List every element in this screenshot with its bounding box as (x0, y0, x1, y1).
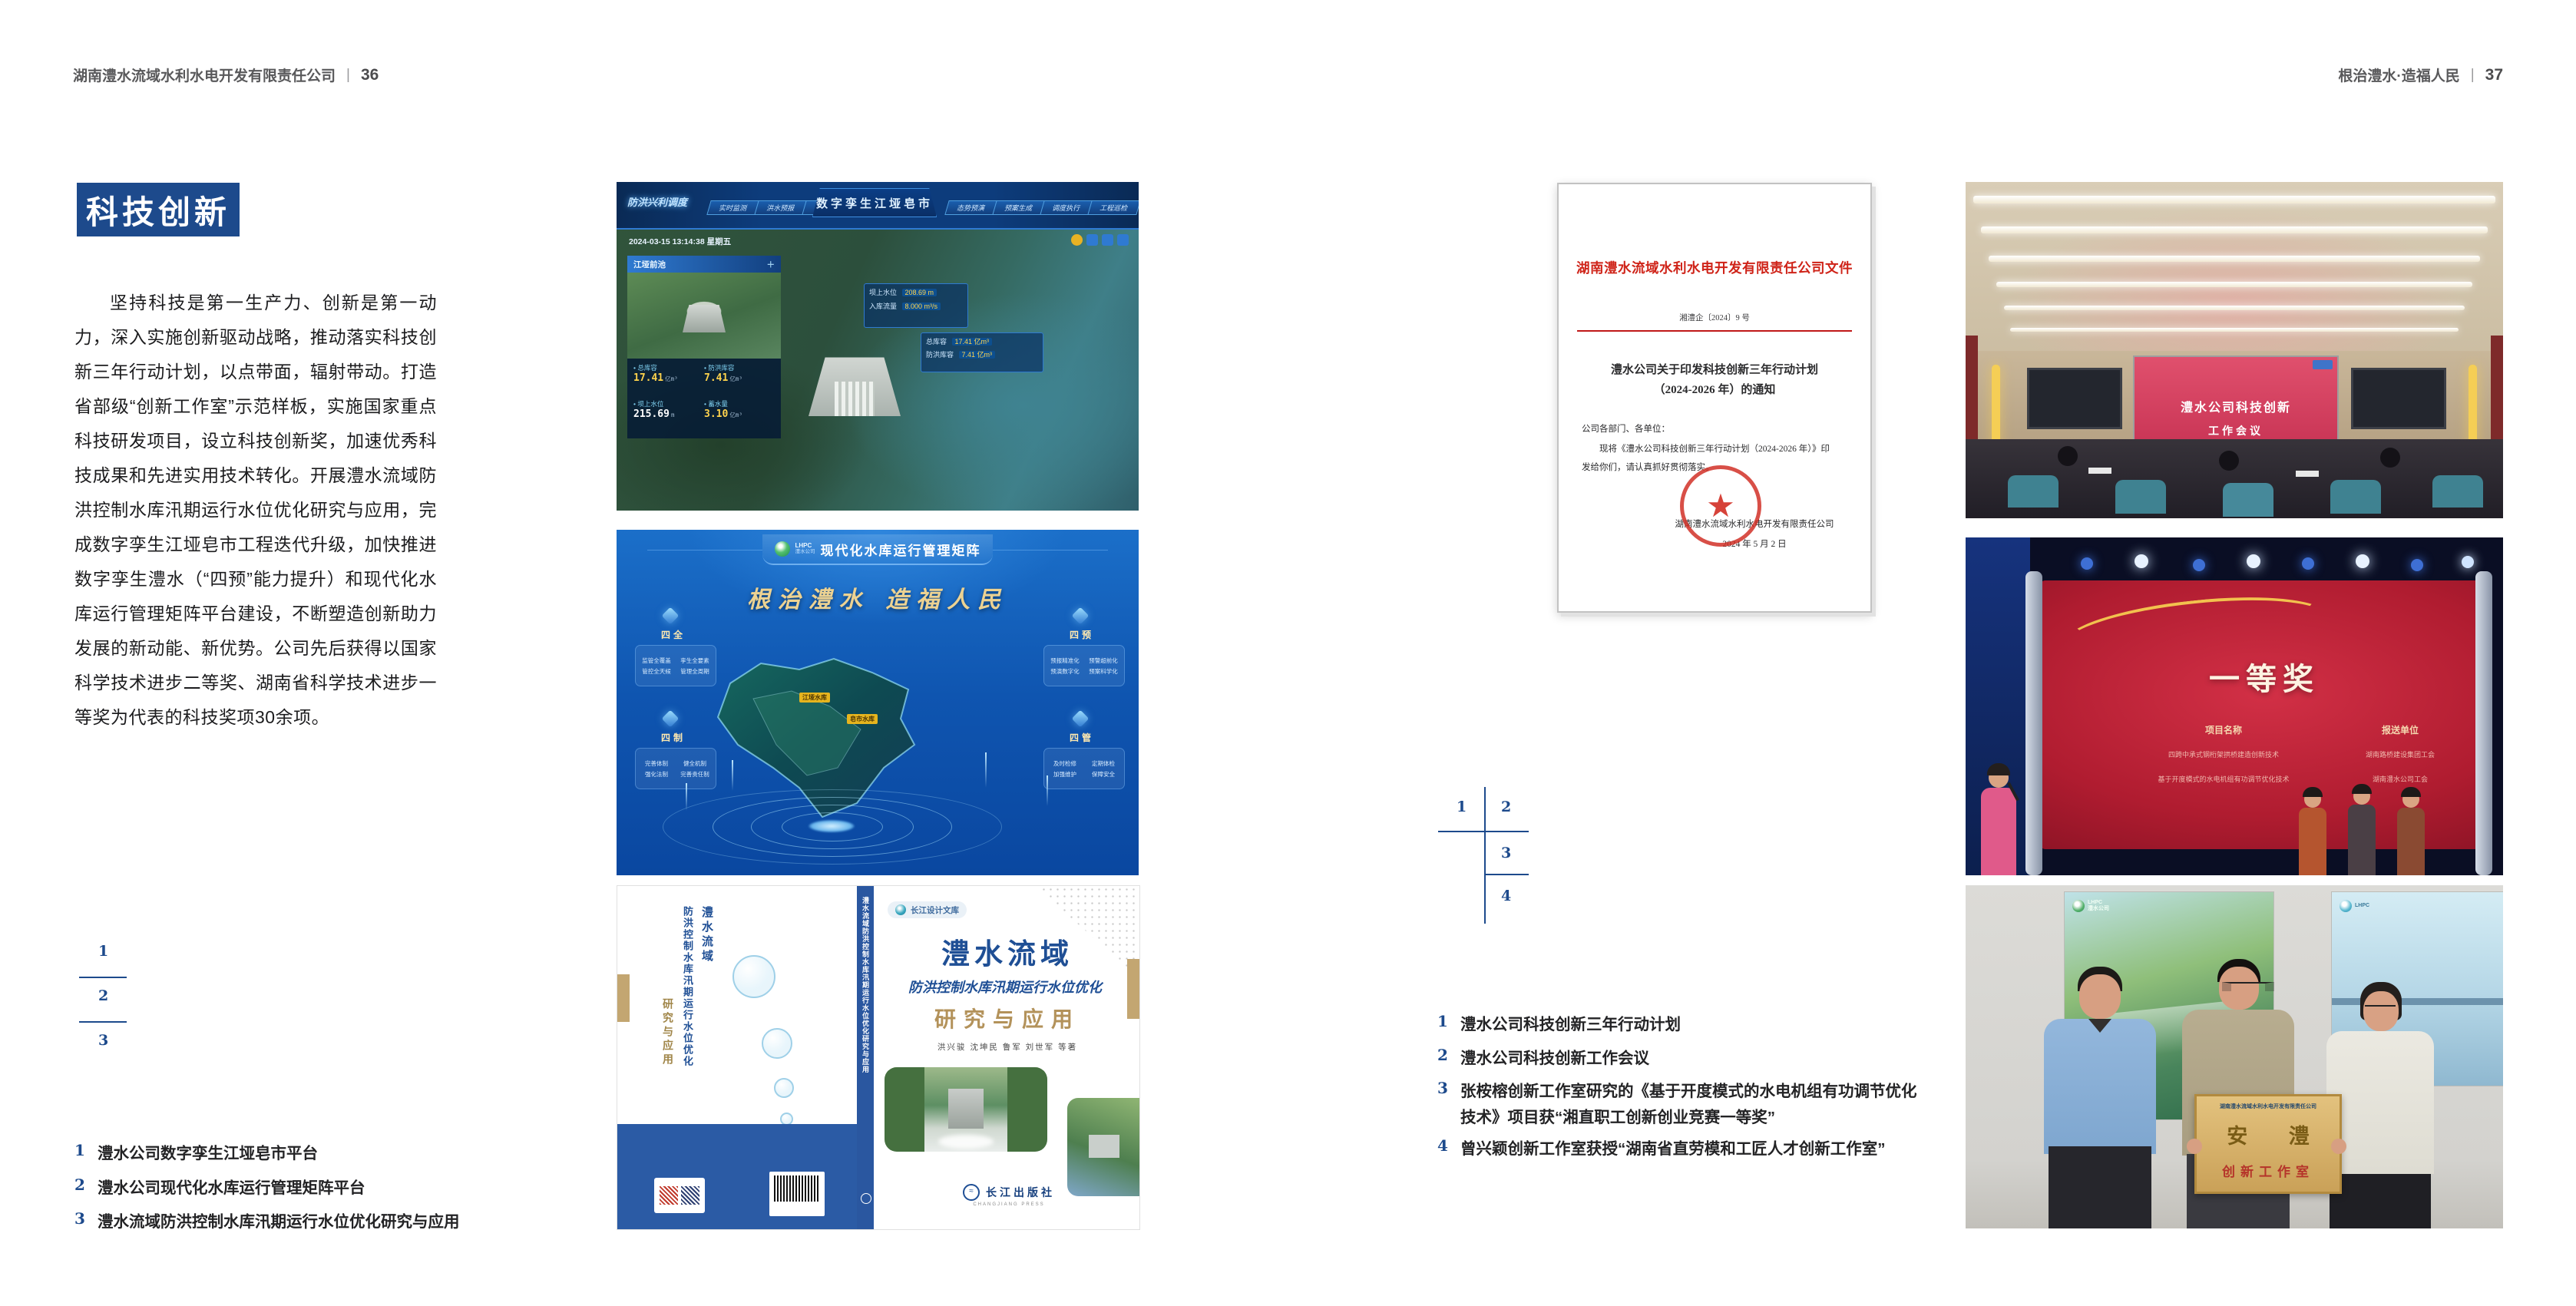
award-title: 一等奖 (2039, 654, 2489, 699)
chip-value: 8.000 m³/s (902, 303, 941, 310)
stat-value: 215.69 (633, 408, 670, 420)
award-row-project: 基于开度模式的水电机组有功调节优化技术 (2124, 774, 2323, 784)
award-row-unit: 湖南澧水公司工会 (2339, 774, 2462, 784)
caption-text: 澧水公司数字孪生江垭皂市平台 (98, 1141, 318, 1167)
publisher-name: 长江出版社 (986, 1185, 1055, 1200)
document-red-rule (1577, 330, 1852, 332)
panel-item: 预报精准化 (1050, 656, 1080, 665)
book-cover-photo (885, 1067, 1047, 1152)
panel-siquan: 监管全覆盖 孪生全要素 管控全天候 管理全周期 (635, 645, 716, 686)
lhpc-logo-icon (2072, 900, 2085, 912)
poster-logo-subtext: 澧水公司 (2088, 906, 2109, 911)
screen-title-line1: 澧水公司科技创新 (2135, 397, 2337, 415)
official-document: 湖南澧水流域水利水电开发有限责任公司文件 湘澧企〔2024〕9 号 澧水公司关于… (1557, 183, 1872, 613)
stat-unit: m (671, 412, 675, 418)
magazine-spread: 湖南澧水流域水利水电开发有限责任公司 | 36 科技创新 坚持科技是第一生产力、… (0, 0, 2576, 1306)
attendee-head (2380, 448, 2400, 468)
caption-row: 3 澧水流域防洪控制水库汛期运行水位优化研究与应用 (74, 1209, 551, 1235)
panel-item: 加强维护 (1053, 770, 1076, 779)
section-title-badge: 科技创新 (77, 183, 240, 236)
spotlight (2247, 554, 2260, 568)
plaque-org-line: 湖南澧水流域水利水电开发有限责任公司 (2197, 1103, 2340, 1110)
official-seal: ★ (1680, 465, 1761, 547)
qr-code (654, 1178, 705, 1213)
panel-item: 完善体制 (645, 759, 668, 768)
header-divider: | (2471, 67, 2475, 84)
chair-back (2432, 475, 2483, 508)
stat-label: 坝上水位 (637, 400, 663, 408)
expand-icon: ＋ (767, 259, 775, 270)
chip-value: 17.41 亿m³ (952, 338, 993, 346)
chair-back (2330, 480, 2381, 514)
publisher-block: ≈ 长江出版社 CHANGJIANG PRESS (901, 1184, 1116, 1207)
glasses-icon (2365, 1005, 2396, 1013)
page-number: 37 (2485, 66, 2503, 84)
panel-name: 四制 (635, 731, 712, 744)
dashboard-tab: 实时监测 (706, 200, 759, 215)
figure-index-2: 2 (1501, 798, 1511, 815)
ceiling-light (2004, 306, 2465, 310)
dashboard-tab: 工程巡检 (1087, 200, 1139, 215)
awardee-figure (2394, 791, 2428, 875)
figure-book-cover: 澧水流域 防洪控制水库汛期运行水位优化 研究与应用 澧水流域防洪控制水库汛期运行… (617, 885, 1140, 1230)
panel-item: 监管全覆盖 (642, 656, 671, 665)
book-back-title-2: 防洪控制水库汛期运行水位优化 (680, 906, 695, 1098)
dashboard-tab: 洪水预报 (754, 200, 807, 215)
index-divider (79, 977, 127, 978)
stat-value: 3.10 (704, 408, 728, 420)
logo-subtext: 澧水公司 (795, 549, 815, 555)
person-figure (2035, 959, 2165, 1228)
panel-item: 强化法制 (645, 770, 668, 779)
header-divider: | (346, 67, 350, 84)
matrix-title: 现代化水库运行管理矩阵 (821, 540, 981, 559)
matrix-header-line (993, 550, 1108, 551)
ripple-core (809, 820, 855, 832)
panel-item: 预演数字化 (1050, 667, 1080, 676)
document-salutation: 公司各部门、各单位： (1582, 422, 1670, 435)
side-tv-screen (2351, 368, 2446, 429)
monitor-panel-title: 江垭前池 (633, 259, 666, 270)
caption-row: 2 澧水公司现代化水库运行管理矩阵平台 (74, 1175, 535, 1202)
caption-row: 1 澧水公司数字孪生江垭皂市平台 (74, 1141, 535, 1167)
document-body-line1: 现将《澧水公司科技创新三年行动计划（2024-2026 年）》印 (1582, 442, 1850, 455)
dashboard-datetime: 2024-03-15 13:14:38 星期五 (629, 236, 731, 247)
panel-siguan: 及时检修 定期体检 加强维护 保障安全 (1043, 748, 1125, 789)
book-spine: 澧水流域防洪控制水库汛期运行水位优化研究与应用 (857, 886, 874, 1229)
matrix-slogan: 根治澧水 造福人民 (617, 580, 1139, 614)
right-running-header: 根治澧水·造福人民 | 37 (1994, 64, 2503, 85)
panel-item: 预案科学化 (1089, 667, 1118, 676)
award-col-project: 项目名称 (2154, 723, 2293, 736)
document-title-line2: （2024-2026 年）的通知 (1559, 381, 1870, 397)
photo-group-plaque: LHPC 澧水公司 LHPC (1966, 885, 2503, 1228)
document-date: 2024 年 5 月 2 日 (1643, 537, 1866, 550)
figure-matrix-platform: LHPC 澧水公司 现代化水库运行管理矩阵 根治澧水 造福人民 江垭水库 皂市水… (617, 530, 1139, 875)
screen-title-line2: 工作会议 (2135, 423, 2337, 438)
lhpc-logo-icon (2340, 900, 2352, 912)
dashboard-title: 数字孪生江垭皂市 (812, 188, 937, 217)
awardee-figure (2296, 791, 2330, 875)
index-vline (1484, 787, 1486, 924)
attendee-head (2219, 451, 2239, 471)
index-hline (1485, 874, 1529, 875)
caption-text: 澧水公司科技创新三年行动计划 (1460, 1012, 1681, 1038)
ceiling-light (1973, 196, 2495, 203)
ceiling-light (1989, 256, 2480, 262)
caption-row: 3 张桉榕创新工作室研究的《基于开度模式的水电机组有功调节优化技术》项目获“湘直… (1437, 1079, 1929, 1131)
ceiling-light (2010, 328, 2459, 332)
side-tv-screen (2027, 368, 2122, 429)
attendee-head (2058, 446, 2078, 466)
body-paragraph: 坚持科技是第一生产力、创新是第一动力，深入实施创新驱动战略，推动落实科技创新三年… (74, 286, 437, 735)
spotlight (2081, 557, 2093, 570)
stat-unit: 亿m³ (729, 412, 742, 418)
caption-row: 4 曾兴颖创新工作室获授“湖南省直劳模和工匠人才创新工作室” (1437, 1136, 1944, 1162)
chip-label: 防洪库容 (926, 351, 954, 359)
figure-index-3: 3 (98, 1032, 108, 1049)
bubble-decoration (732, 955, 775, 998)
plaque-main-text: 安 澧 (2197, 1119, 2340, 1149)
motto: 根治澧水·造福人民 (2338, 64, 2459, 85)
spine-logo-icon (861, 1193, 871, 1204)
panel-item: 保障安全 (1092, 770, 1115, 779)
spotlight (2135, 554, 2148, 568)
figure-index-1: 1 (98, 943, 108, 960)
light-pin (732, 760, 733, 791)
seal-star-icon: ★ (1706, 490, 1735, 522)
book-series-chip: 长江设计文库 (888, 901, 967, 918)
matrix-header: LHPC 澧水公司 现代化水库运行管理矩阵 (762, 534, 993, 565)
document-title-line1: 澧水公司关于印发科技创新三年行动计划 (1559, 361, 1870, 377)
bubble-decoration (774, 1078, 794, 1098)
caption-number: 1 (74, 1141, 98, 1159)
book-title-sub: 防洪控制水库汛期运行水位优化 (878, 977, 1132, 997)
series-logo-icon (895, 904, 906, 915)
panel-item: 完善责任制 (680, 770, 709, 779)
lhpc-logo-icon (775, 541, 790, 557)
barcode (769, 1172, 825, 1216)
book-authors: 洪兴骏 沈坤民 鲁军 刘世军 等著 (886, 1041, 1129, 1053)
table-paper (2296, 471, 2319, 477)
book-back-blue-band (617, 1124, 857, 1229)
index-divider (79, 1021, 127, 1023)
chip-label: 总库容 (926, 338, 947, 346)
chip-value: 208.69 m (902, 289, 937, 296)
poster-logo-text: LHPC (2355, 903, 2369, 908)
caption-text: 张桉榕创新工作室研究的《基于开度模式的水电机组有功调节优化技术》项目获“湘直职工… (1460, 1079, 1929, 1131)
award-col-unit: 报送单位 (2339, 723, 2462, 736)
book-title-main: 澧水流域 (886, 931, 1129, 972)
spotlight (2411, 559, 2423, 571)
award-row-project: 四跨中承式钢桁架拱桥建造创新技术 (2124, 749, 2323, 759)
caption-text: 曾兴颖创新工作室获授“湖南省直劳模和工匠人才创新工作室” (1460, 1136, 1886, 1162)
stage-pillar (2475, 571, 2492, 875)
stat-label: 蓄水量 (708, 400, 728, 408)
figure-index-2: 2 (98, 987, 108, 1004)
caption-row: 1 澧水公司科技创新三年行动计划 (1437, 1012, 1944, 1038)
camera-icon (1086, 234, 1098, 246)
light-pin (985, 752, 987, 788)
bubble-decoration (762, 1028, 792, 1059)
water-level-chip: 坝上水位 208.69 m 入库流量 8.000 m³/s (864, 283, 968, 328)
page-right: 根治澧水·造福人民 | 37 湖南澧水流域水利水电开发有限责任公司文件 湘澧企〔… (1288, 0, 2576, 1306)
host-figure (1976, 768, 2021, 875)
spotlight (2302, 557, 2314, 570)
caption-text: 澧水公司现代化水库运行管理矩阵平台 (98, 1175, 365, 1202)
caption-row: 2 澧水公司科技创新工作会议 (1437, 1046, 1944, 1072)
panel-name: 四全 (635, 628, 712, 641)
caption-text: 澧水流域防洪控制水库汛期运行水位优化研究与应用 (98, 1209, 460, 1235)
user-icon (1071, 234, 1083, 246)
light-pin (1047, 775, 1048, 806)
document-number: 湘澧企〔2024〕9 号 (1559, 312, 1870, 323)
book-back-title-3: 研究与应用 (660, 998, 676, 1090)
dashboard-tab: 预案生成 (992, 200, 1045, 215)
company-name: 湖南澧水流域水利水电开发有限责任公司 (73, 64, 336, 85)
ceiling-light (1996, 282, 2472, 287)
monitor-panel: 江垭前池 ＋ • 总库容 17.41亿m³ • 防洪库容 7.41亿m³ • 坝… (627, 256, 781, 429)
stat-value: 17.41 (633, 372, 663, 384)
light-pin (686, 783, 687, 811)
panel-item: 及时检修 (1053, 759, 1076, 768)
chip-label: 坝上水位 (869, 289, 897, 296)
page-left: 湖南澧水流域水利水电开发有限责任公司 | 36 科技创新 坚持科技是第一生产力、… (0, 0, 1288, 1306)
plaque-sub-text: 创新工作室 (2197, 1161, 2340, 1180)
figure-index-3: 3 (1501, 845, 1511, 861)
stat-label: 防洪库容 (708, 364, 734, 372)
locate-icon (1102, 234, 1113, 246)
capacity-chip: 总库容 17.41 亿m³ 防洪库容 7.41 亿m³ (921, 332, 1043, 372)
dashboard-corner-label: 防洪兴利调度 (627, 194, 687, 209)
dam-video-thumbnail (627, 273, 781, 359)
awardee-figure (2345, 788, 2379, 875)
page-number: 36 (361, 66, 379, 84)
dashboard-tab: 调度执行 (1040, 200, 1093, 215)
photo-award-stage: 一等奖 项目名称 报送单位 四跨中承式钢桁架拱桥建造创新技术 湖南路桥建设集团工… (1966, 537, 2503, 875)
panel-icon (662, 710, 680, 728)
table-paper (2088, 468, 2111, 474)
spotlight (2356, 554, 2369, 568)
chip-label: 入库流量 (869, 303, 897, 310)
stat-unit: 亿m³ (665, 375, 678, 382)
dashboard-tab: 态势预演 (944, 200, 997, 215)
book-back-title-1: 澧水流域 (699, 906, 715, 975)
stat-label: 总库容 (637, 364, 657, 372)
alert-icon (1117, 234, 1129, 246)
caption-number: 3 (74, 1209, 98, 1228)
spotlight (2193, 559, 2205, 571)
dam-spillway (835, 382, 875, 416)
innovation-studio-plaque: 湖南澧水流域水利水电开发有限责任公司 安 澧 创新工作室 (2194, 1094, 2342, 1194)
poster-logo-text: LHPC (2088, 900, 2102, 905)
panel-item: 定期体检 (1092, 759, 1115, 768)
stage-pillar (2025, 571, 2042, 875)
chair-back (2223, 483, 2273, 517)
logo-text: LHPC (795, 543, 815, 549)
chair-back (2008, 475, 2058, 508)
caption-number: 2 (1437, 1046, 1460, 1064)
figure-index-4: 4 (1501, 888, 1511, 904)
ceiling (1966, 182, 2503, 359)
hand (2331, 1139, 2346, 1154)
matrix-header-line (647, 550, 762, 551)
document-red-title: 湖南澧水流域水利水电开发有限责任公司文件 (1559, 258, 1870, 277)
panel-name: 四预 (1043, 628, 1120, 641)
publisher-logo-icon: ≈ (963, 1184, 980, 1201)
map-label-zaoshi: 皂市水库 (847, 714, 878, 724)
book-bottom-photo (1067, 1098, 1139, 1196)
caption-number: 3 (1437, 1079, 1460, 1097)
book-back-khaki-block (617, 974, 630, 1022)
panel-sizhi: 完善体制 健全机制 强化法制 完善责任制 (635, 748, 716, 789)
stat-value: 7.41 (704, 372, 728, 384)
panel-item: 健全机制 (683, 759, 706, 768)
left-running-header: 湖南澧水流域水利水电开发有限责任公司 | 36 (73, 64, 379, 85)
series-label: 长江设计文库 (911, 904, 959, 916)
book-title-tail: 研究与应用 (886, 1003, 1129, 1033)
book-spine-title: 澧水流域防洪控制水库汛期运行水位优化研究与应用 (861, 897, 871, 1150)
ceiling-light (1981, 226, 2488, 233)
chip-value: 7.41 亿m³ (959, 351, 996, 359)
photo-meeting-room: 澧水公司科技创新 工作会议 (1966, 182, 2503, 518)
panel-item: 预警超前化 (1089, 656, 1118, 665)
map-label-jiangya: 江垭水库 (799, 693, 830, 703)
stat-unit: 亿m³ (729, 375, 742, 382)
chair-back (2115, 480, 2166, 514)
figure-index-1: 1 (1457, 798, 1467, 815)
panel-item: 孪生全要素 (680, 656, 709, 665)
spotlight (2462, 556, 2474, 568)
caption-number: 2 (74, 1175, 98, 1194)
glasses-icon (2222, 982, 2274, 991)
panel-item: 管控全天候 (642, 667, 671, 676)
caption-number: 1 (1437, 1012, 1460, 1030)
caption-number: 4 (1437, 1136, 1460, 1155)
figure-digital-twin-dashboard: 防洪兴利调度 实时监测 洪水预报 防汛预警 数字孪生江垭皂市 态势预演 预案生成… (617, 182, 1139, 511)
hand (2187, 1139, 2202, 1154)
publisher-name-en: CHANGJIANG PRESS (901, 1202, 1116, 1207)
panel-name: 四管 (1043, 731, 1120, 744)
panel-siyu: 预报精准化 预警超前化 预演数字化 预案科学化 (1043, 645, 1125, 686)
index-hline (1438, 831, 1529, 832)
panel-item: 管理全周期 (680, 667, 709, 676)
award-row-unit: 湖南路桥建设集团工会 (2339, 749, 2462, 759)
panel-icon (1072, 710, 1090, 728)
caption-text: 澧水公司科技创新工作会议 (1460, 1046, 1649, 1072)
